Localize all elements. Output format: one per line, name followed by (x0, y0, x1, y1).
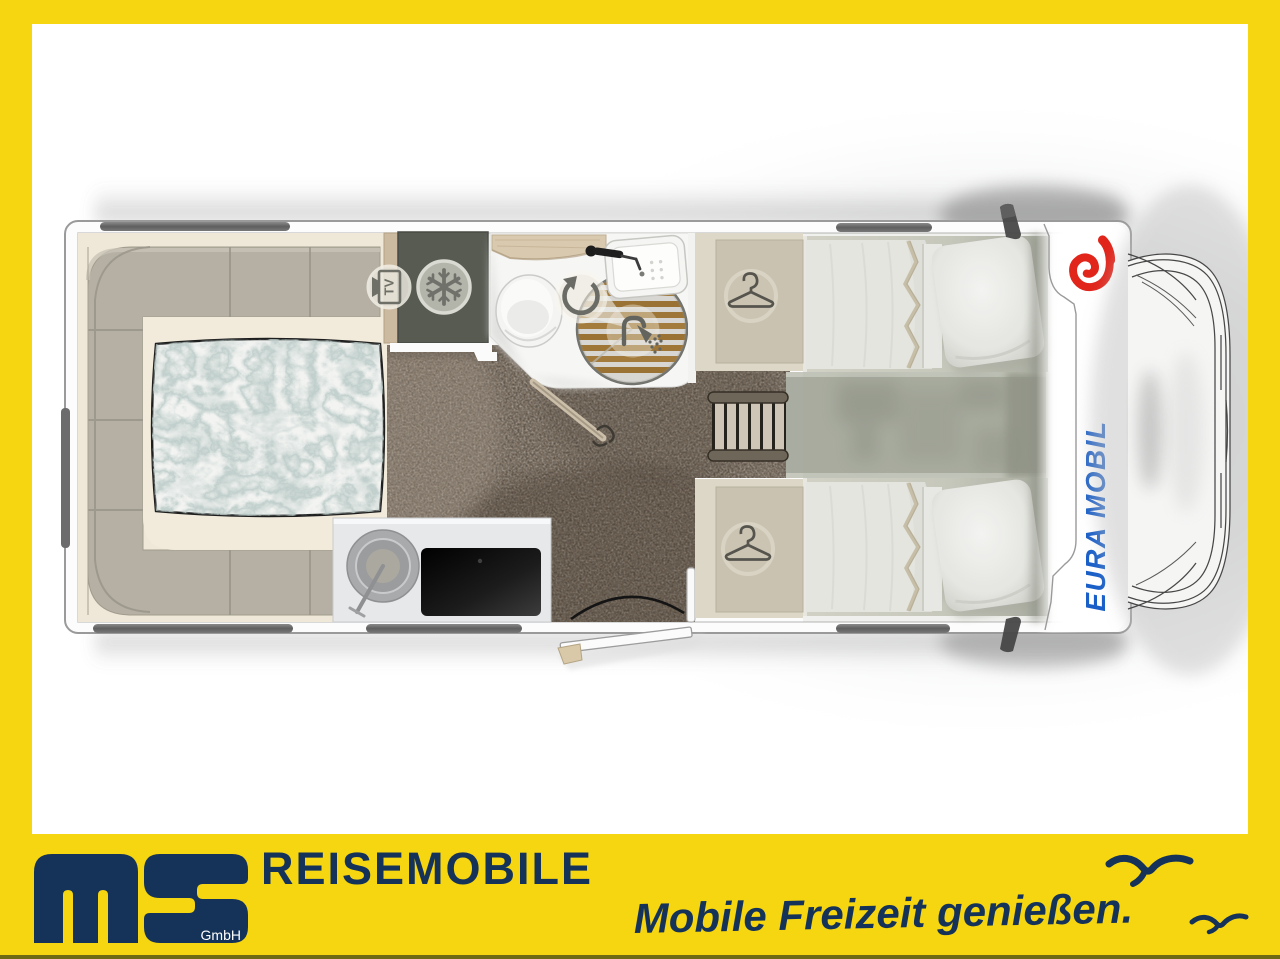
svg-text:TV: TV (382, 278, 397, 295)
svg-text:GmbH: GmbH (201, 927, 241, 943)
svg-text:REISEMOBILE: REISEMOBILE (261, 843, 593, 894)
